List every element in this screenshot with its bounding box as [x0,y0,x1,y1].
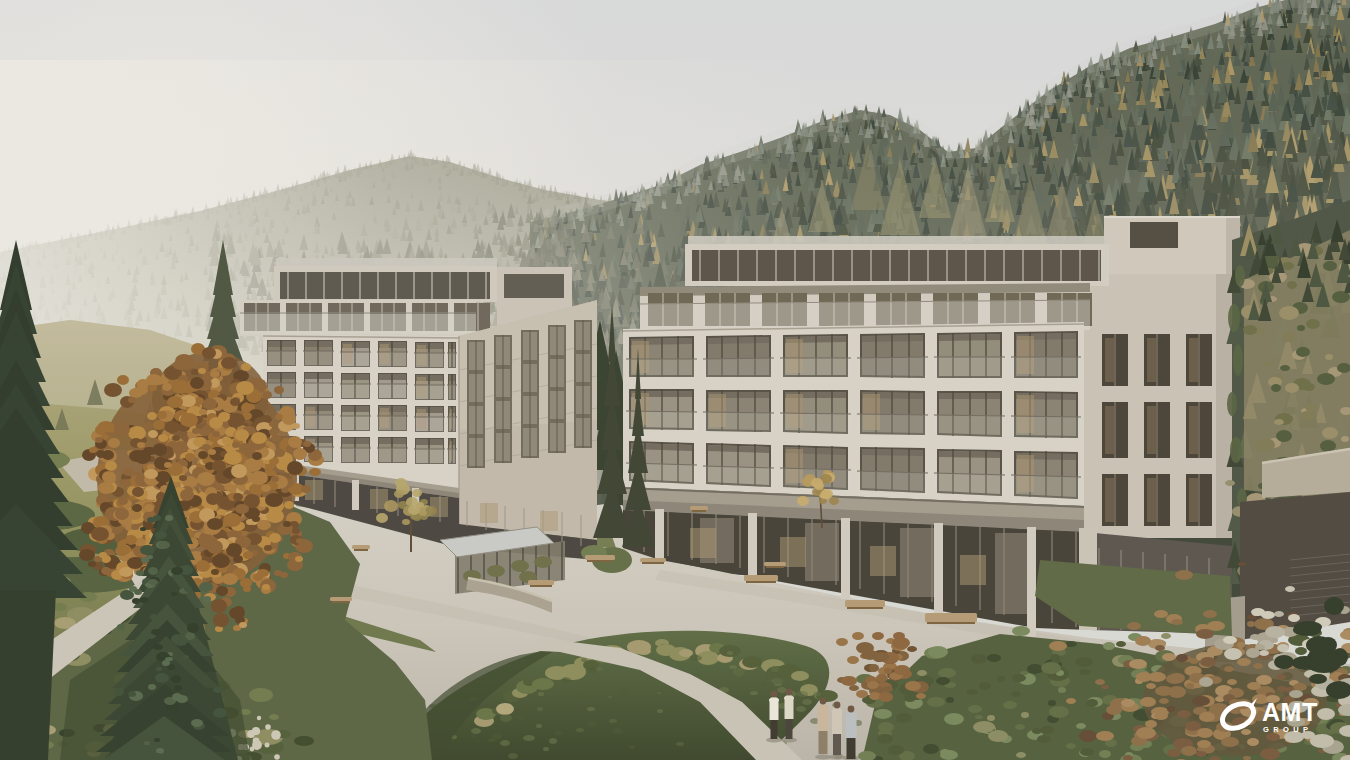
svg-text:GROUP: GROUP [1263,725,1313,734]
svg-text:AMT: AMT [1262,698,1318,726]
